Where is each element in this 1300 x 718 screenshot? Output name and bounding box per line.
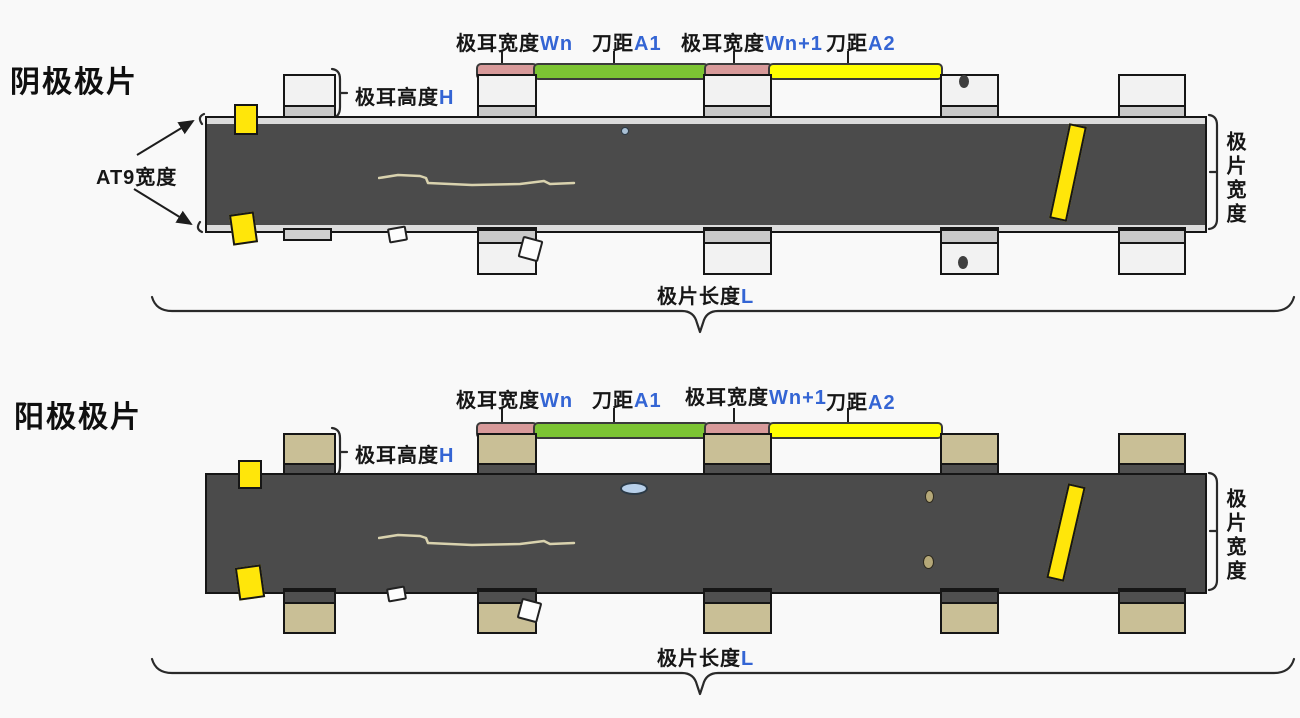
cathode-tab-width-next-label: 极耳宽度Wn+1: [681, 27, 823, 56]
label-text: 极耳高度: [355, 87, 439, 109]
label-var: Wn+1: [765, 33, 823, 55]
electrode-tab: [703, 227, 772, 275]
knife-gap-a1-bar: [533, 422, 709, 439]
electrode-tab: [940, 227, 999, 275]
tab-coating-band: [940, 229, 999, 244]
cathode-title: 阴极极片: [10, 57, 138, 101]
dimension-tick: [613, 408, 615, 422]
label-var: Wn: [540, 390, 573, 412]
sheet-length-brace-icon: [150, 294, 1296, 336]
label-text: 极耳宽度: [685, 387, 769, 409]
tab-coating-band: [283, 590, 336, 604]
cathode-tab-height-label: 极耳高度H: [355, 81, 454, 110]
electrode-tab: [940, 74, 999, 122]
electrode-tab: [1118, 588, 1186, 634]
electrode-tab: [1118, 74, 1186, 122]
at9-arrow-icon: [85, 105, 210, 240]
knife-gap-a2-bar: [768, 422, 943, 439]
tab-dark-defect: [958, 256, 968, 269]
electrode-tab: [703, 588, 772, 634]
tab-coating-band: [1118, 229, 1186, 244]
label-var: H: [439, 87, 454, 109]
spot-defect: [923, 555, 934, 569]
anode-tab-height-label: 极耳高度H: [355, 439, 454, 468]
electrode-tab: [283, 74, 336, 122]
anode-tab-width-label: 极耳宽度Wn: [456, 384, 573, 413]
sheet-length-brace-icon: [150, 656, 1296, 698]
bubble-defect: [620, 482, 648, 495]
electrode-tab: [283, 588, 336, 634]
dimension-tick: [501, 408, 503, 422]
label-var: Wn: [540, 33, 573, 55]
scratch-defect: [378, 170, 578, 190]
edge-notch-defect: [387, 225, 408, 243]
electrode-tab: [477, 74, 537, 122]
label-text: 极耳宽度: [681, 33, 765, 55]
anode-knife-a2-label: 刀距A2: [826, 386, 896, 415]
electrode-tab: [1118, 227, 1186, 275]
anode-tab-width-next-label: 极耳宽度Wn+1: [685, 381, 827, 410]
label-var: Wn+1: [769, 387, 827, 409]
yellow-tape-marker: [238, 460, 262, 489]
dimension-tick: [847, 408, 849, 422]
anode-sheet-width-label: 极片宽度: [1222, 488, 1246, 584]
yellow-tape-marker: [234, 104, 258, 135]
dimension-tick: [733, 408, 735, 422]
tab-coating-band: [703, 590, 772, 604]
label-var: A2: [868, 33, 896, 55]
yellow-tape-marker: [235, 564, 265, 600]
knife-gap-a1-bar: [533, 63, 709, 80]
cathode-tab-width-label: 极耳宽度Wn: [456, 27, 573, 56]
electrode-tab-partial: [283, 228, 332, 241]
electrode-tab: [940, 588, 999, 634]
label-text: 极耳宽度: [456, 33, 540, 55]
spot-defect: [925, 490, 934, 503]
anode-title: 阳极极片: [14, 392, 142, 436]
label-var: A1: [634, 33, 662, 55]
electrode-tab: [703, 74, 772, 122]
label-var: H: [439, 445, 454, 467]
tab-coating-band: [940, 590, 999, 604]
edge-notch-defect: [386, 585, 407, 602]
electrode-sheet-diagram: 阴极极片 极耳宽度Wn 刀距A1 极耳宽度Wn+1 刀距A2 极耳高度H: [0, 0, 1300, 718]
yellow-tape-marker: [229, 211, 258, 245]
cathode-sheet-width-label: 极片宽度: [1222, 131, 1246, 227]
label-text: 极耳高度: [355, 445, 439, 467]
scratch-defect: [378, 530, 578, 550]
cathode-knife-a1-label: 刀距A1: [592, 27, 662, 56]
knife-gap-a2-bar: [768, 63, 943, 80]
label-var: A2: [868, 392, 896, 414]
label-text: 极耳宽度: [456, 390, 540, 412]
tab-coating-band: [1118, 590, 1186, 604]
foil-edge-band: [207, 118, 1205, 124]
label-var: A1: [634, 390, 662, 412]
pinhole-defect: [621, 127, 629, 135]
tab-dark-defect: [959, 75, 969, 88]
anode-knife-a1-label: 刀距A1: [592, 384, 662, 413]
cathode-knife-a2-label: 刀距A2: [826, 27, 896, 56]
tab-coating-band: [703, 229, 772, 244]
